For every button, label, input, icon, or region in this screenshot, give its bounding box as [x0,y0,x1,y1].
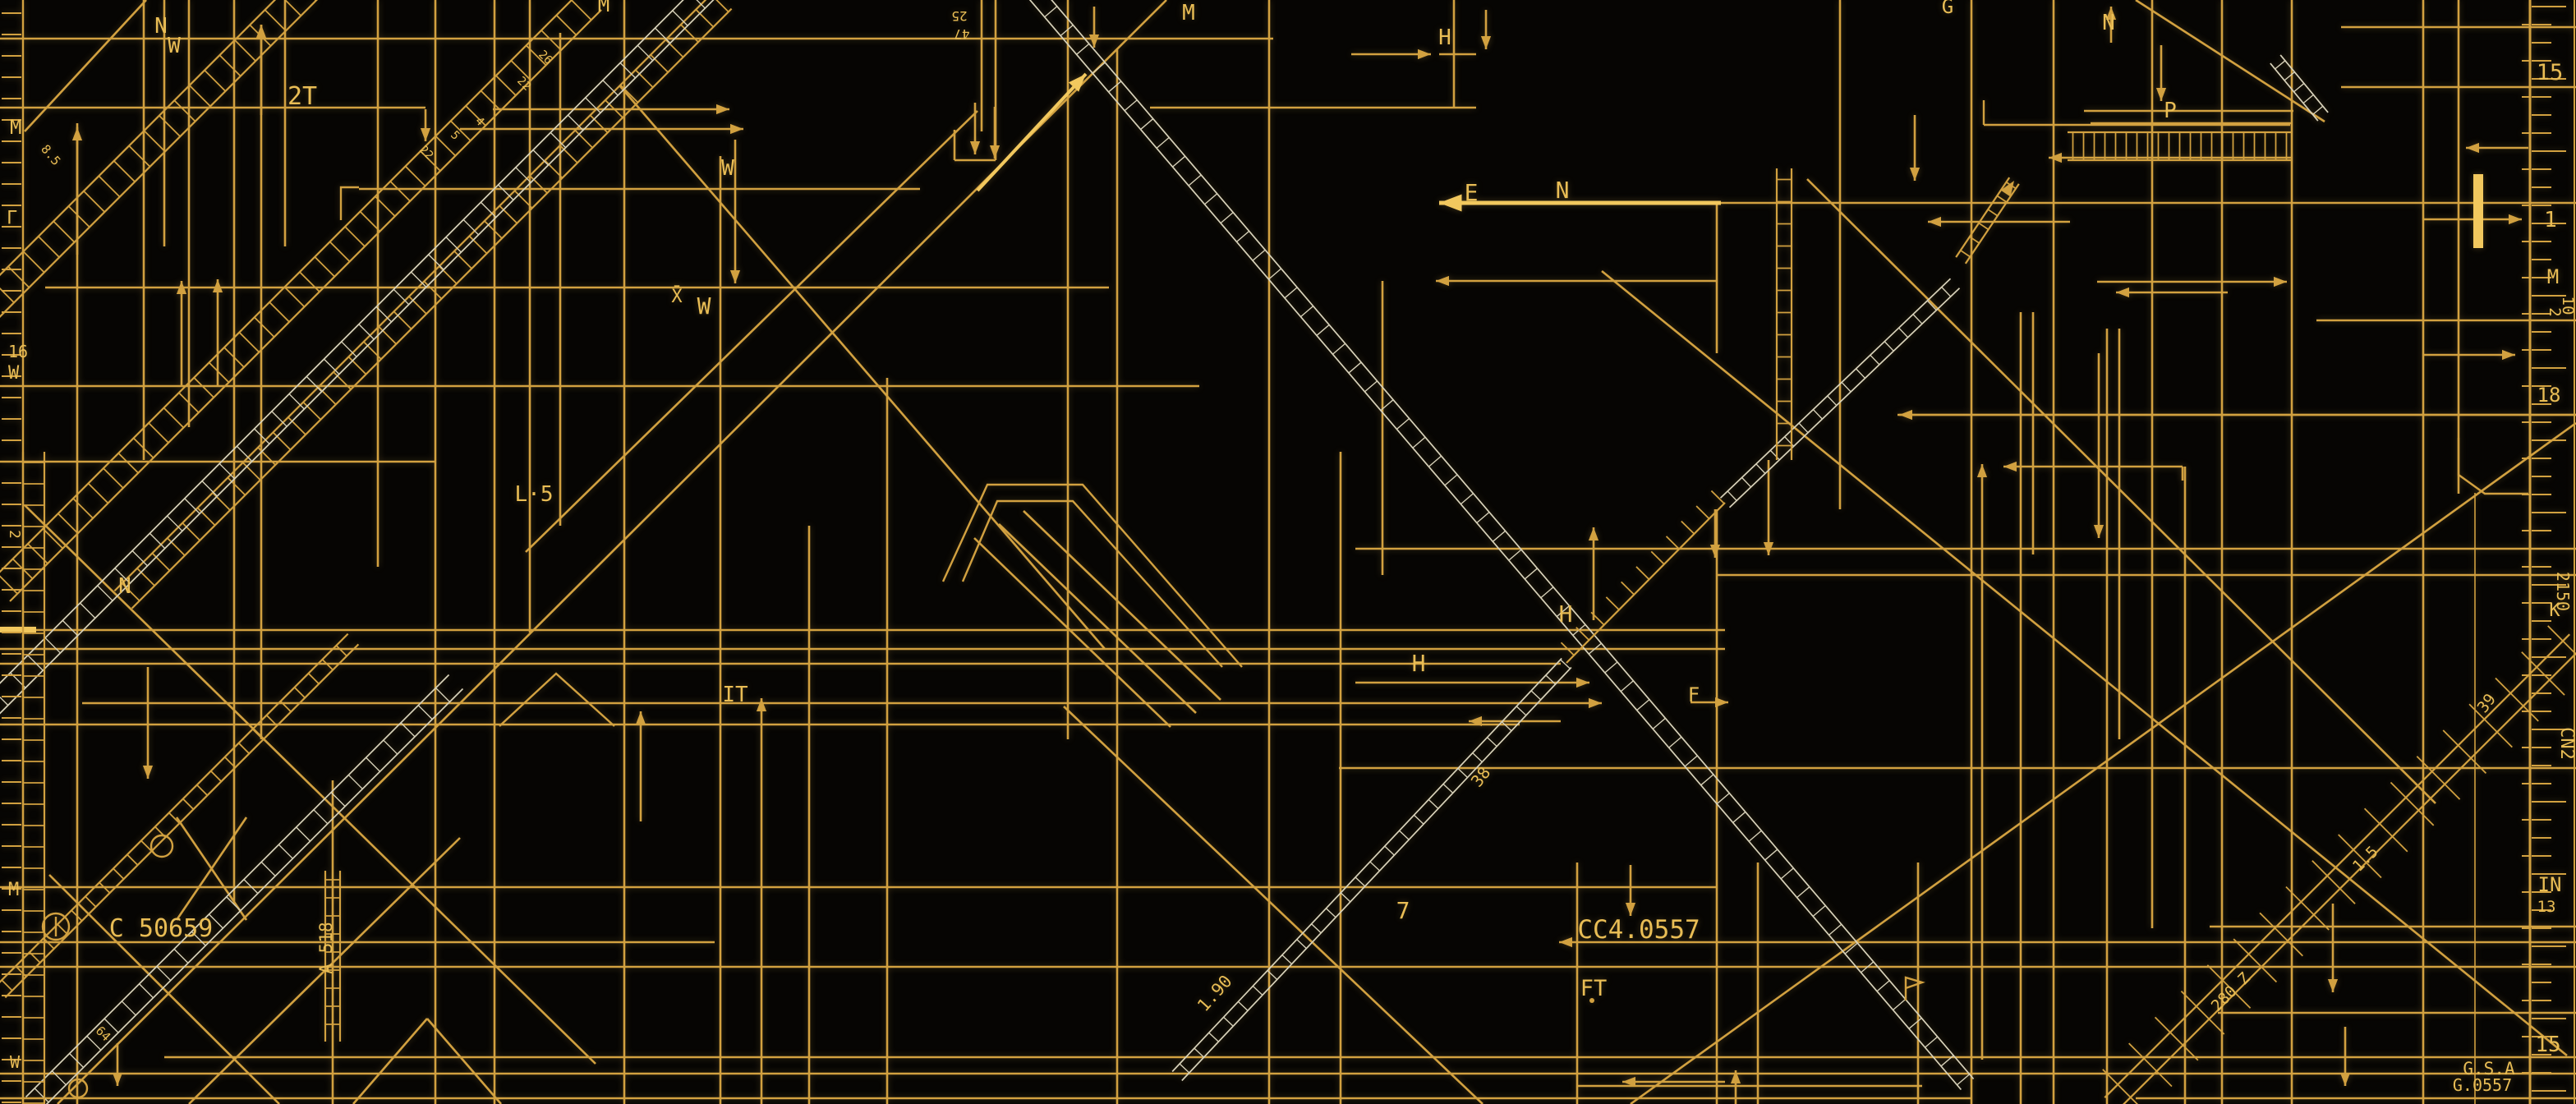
ladder-rail [1020,0,1961,1089]
ladder-rung [345,227,365,246]
ladder-rung [1781,868,1793,879]
arrowhead [2049,153,2062,163]
arrowhead [1481,36,1491,49]
ladder-rung [2522,652,2564,695]
ladder-rung [1300,306,1313,317]
label-5: 5 [448,129,462,143]
ladder-rung [673,11,688,25]
ladder-rung [1509,550,1521,560]
label-g0557: G.0557 [2453,1075,2512,1095]
ladder-rung [384,740,398,754]
label-w: W [168,34,181,58]
ladder-rung [1541,587,1553,598]
ladder-rung [1473,753,1483,762]
label-k: K [2549,600,2560,621]
ladder-rung [1189,175,1201,186]
ladder-rung [239,743,250,754]
ladder-rung [1813,905,1825,916]
ladder-rung [556,16,576,35]
line [620,86,1105,649]
ladder-rail [1966,184,2019,264]
ladder-rung [1209,1033,1219,1042]
ladder-rung [530,176,547,193]
bright-bar [2473,174,2483,248]
ladder-rung [591,115,608,132]
ladder-rung [152,553,169,570]
label-n: N [1556,177,1570,204]
ladder-rung [69,206,90,227]
ladder-rung [1326,908,1336,918]
arrowhead [1439,195,1462,212]
hatch-tick [1606,597,1619,609]
ladder-rung [129,145,149,166]
arrowhead [2466,143,2479,153]
label-25: 25 [951,8,967,24]
ladder-rung [560,145,577,163]
ladder-rung [45,638,60,653]
label-w: W [721,156,734,181]
ladder-rung [463,219,478,234]
ladder-rung [2548,626,2576,669]
label-13: 13 [2537,898,2556,916]
label-15: 1.5 [2349,843,2382,876]
ladder-rung [2390,783,2433,826]
arrowhead [757,698,766,711]
ladder-rung [269,302,289,322]
ladder-rung [1909,1018,1921,1028]
ladder-rung [1913,315,1922,324]
ladder-rung [1109,81,1121,92]
ladder-rung [1385,846,1395,855]
label-85: 8.5 [38,142,63,168]
ladder-rung [211,771,222,782]
ladder-rung [261,862,275,876]
ladder-rung [62,620,77,635]
arrowhead [970,141,980,154]
ladder-rung [1531,691,1541,700]
ladder-rung [308,674,319,684]
ladder-rung [235,40,255,61]
arrowhead [1715,697,1728,707]
ladder-rung [159,116,180,136]
ladder-rung [34,1088,48,1102]
ladder-rung [219,55,240,76]
arrowhead [990,145,1000,159]
arrowhead [1731,1070,1741,1083]
ladder-rung [99,176,119,196]
ladder-rung [1125,100,1137,111]
ladder-rung [1502,722,1511,731]
ladder-rail [1033,0,1974,1079]
ladder-rung [1685,756,1697,766]
ladder-rung [1238,1001,1248,1010]
ladder-rung [348,775,362,789]
ladder-rung [1516,706,1526,715]
label-7: 7 [1396,897,1410,924]
ladder-rung [39,237,59,257]
label-10: 10 [2559,297,2576,315]
label-m: M [598,0,609,16]
ladder-rung [58,513,78,533]
ladder-rung [651,55,668,72]
arrowhead [421,128,430,141]
ladder-rung [1733,812,1746,822]
ladder-rung [1045,7,1057,17]
label-in: IN [2538,873,2562,896]
line [1064,706,1483,1104]
ladder-rung [1813,410,1822,420]
ladder-rung [255,317,274,337]
ladder-rung [2275,61,2285,69]
ladder-rung [1525,568,1537,579]
ladder-rail [0,0,372,356]
ladder-rung [1428,799,1438,808]
ladder-rung [103,468,123,488]
ladder-rung [499,206,517,223]
label-h: H [1438,25,1451,50]
arrowhead [730,270,740,283]
label-e: E [1465,179,1479,206]
ladder-rung [2155,1017,2198,1060]
ladder-rung [23,251,44,272]
label-w: W [8,363,20,384]
arrowhead [1710,545,1720,558]
ladder-rung [1797,887,1810,898]
ladder-rung [132,550,147,565]
label-2: 2 [6,530,23,539]
ladder-rung [1842,382,1851,392]
ladder-rung [1297,940,1307,949]
hatch-line [1566,503,1725,663]
ladder-rung [1364,381,1377,392]
ladder-rung [1355,877,1365,886]
ladder-rung [711,0,729,11]
ladder-rung [1282,955,1292,964]
arrowhead [2094,525,2104,538]
ladder-rung [1605,662,1617,673]
ladder-rung [1253,986,1263,995]
ladder-rung [1756,464,1765,474]
ladder-rung [190,85,210,106]
label-ft: FT [1580,976,1608,1001]
ladder-rung [1870,355,1879,365]
ladder-rung [183,799,194,810]
ladder-rung [2443,730,2486,773]
ladder-rung [278,844,292,858]
arrowhead [2502,350,2515,360]
hatch-tick [1667,536,1680,549]
ladder-rung [219,463,234,478]
ladder-rung [1443,784,1453,793]
label-2t: 2T [287,82,317,111]
ladder-rung [149,533,164,548]
ladder-rung [1141,119,1153,130]
ladder-rung [1396,418,1409,429]
ladder-rung [202,481,217,496]
ladder-rung [1317,324,1329,335]
label-cn2: CN2 [2556,727,2576,760]
ladder-rung [88,483,108,503]
arrowhead [2340,1073,2350,1086]
ladder-rung [1856,369,1865,379]
ladder-rung [1460,494,1473,504]
ladder-rail [2104,634,2569,1097]
ladder-rung [174,100,195,121]
arrowhead [1589,698,1602,708]
ladder-rung [1893,1000,1906,1010]
ladder-rung [1701,775,1713,785]
label-f: F [1688,683,1700,706]
ladder-rung [2284,72,2294,80]
ladder-rung [2495,678,2538,720]
ladder-rung [0,690,8,705]
ladder-rung [620,85,637,103]
ladder-rung [1224,1017,1234,1026]
ladder-rung [481,90,500,110]
ladder-rung [394,311,412,329]
label-g: G [1942,0,1953,18]
ladder-rung [1205,194,1217,205]
label-m: M [2547,265,2559,288]
arrowhead [1559,937,1572,947]
ladder-rung [366,757,380,771]
ladder-rung [295,0,315,1]
ladder-rung [1414,815,1424,824]
ladder-rung [1765,849,1778,860]
arrowhead [716,104,729,114]
ladder-rung [80,603,94,618]
ladder-rung [174,949,188,963]
ladder-rung [342,342,356,356]
ladder-rung [303,402,320,420]
ladder-rung [1253,250,1265,260]
ladder-rung [185,499,200,513]
ladder-rung [2260,913,2302,955]
ladder-rung [1341,893,1350,902]
label-m: M [8,880,19,900]
ladder-rung [118,453,138,473]
ladder-rung [209,362,229,382]
ladder-rung [140,984,154,998]
ladder-rung [541,30,561,50]
ladder-rung [393,289,408,304]
ladder-rung [1770,450,1779,460]
arrowhead [143,766,153,779]
ladder-rung [198,508,215,525]
ladder-rung [1400,830,1410,839]
ladder-rung [336,646,347,656]
outline-path [499,674,614,726]
label-cc40557: CC4.0557 [1577,915,1700,945]
ladder-rung [141,840,152,851]
ladder-rung [469,236,486,253]
ladder-rung [205,71,225,91]
ladder-rung [0,282,14,302]
ladder-rung [575,131,592,148]
ladder-rung [1828,396,1837,406]
ladder-rail [1720,278,1950,498]
ladder-rung [85,896,96,907]
arrowhead [1589,527,1598,540]
ladder-rung [1997,195,2007,202]
ladder-rung [1173,156,1185,167]
ladder-rung [1332,343,1345,354]
ladder-rung [122,1001,136,1015]
ladder-rung [330,241,350,261]
ladder-rung [1413,437,1425,448]
ladder-rung [379,327,396,344]
ladder-rung [1370,862,1380,871]
arrowhead [1910,168,1920,181]
label-it: IT [722,683,748,707]
bright-bar [0,627,36,632]
ladder-rung [436,688,450,701]
label-p: P [2164,99,2177,123]
ladder-rung [300,272,320,292]
ladder-rung [665,39,683,57]
arrowhead [636,711,646,724]
ladder-rung [144,131,164,151]
label-h: H [1412,650,1426,677]
line [526,111,977,552]
label-15: 15 [2537,60,2564,85]
label-m: M [10,116,21,139]
ladder-rung [237,446,251,461]
ladder-rung [446,237,461,252]
ladder-rung [284,287,304,306]
ladder-rung [409,297,426,314]
arrowhead [730,124,743,134]
ladder-rung [655,28,670,43]
line [999,524,1196,713]
ladder-rung [1428,456,1441,467]
ladder-rung [1979,223,1989,230]
label-a518: A 518 [316,922,336,973]
label-: Γ [7,208,17,228]
label-n: N [154,14,168,39]
ladder-rung [620,63,635,78]
line [1807,179,2436,803]
label-l5: L·5 [515,482,554,507]
ladder-rung [1268,269,1281,279]
ladder-rung [1445,475,1457,485]
ladder-rung [280,0,301,16]
label-16: 16 [8,342,28,361]
ladder-rung [1221,213,1233,223]
line [49,875,279,1104]
ladder-rung [2,980,12,991]
ladder-rail [5,644,358,997]
ladder-rung [485,221,502,238]
ladder-rung [157,967,171,981]
ladder-rung [163,408,183,428]
arrowhead [1977,464,1987,477]
ladder-rung [637,45,652,60]
ladder-rung [1899,328,1908,338]
ladder-rung [1477,513,1489,523]
ladder-rung [1092,62,1105,73]
line [25,0,146,131]
ladder-rung [319,387,336,404]
ladder-rung [454,251,471,269]
ladder-rung [1884,342,1893,352]
ladder-rung [315,257,334,277]
label-c50659: C 50659 [109,914,213,943]
hatch-tick [1696,506,1709,518]
ladder-rung [197,785,208,796]
ladder-rung [1988,209,1998,216]
circle-mark [151,835,172,857]
ladder-rung [168,516,182,531]
ladder-rail [1956,177,2009,257]
ladder-rung [1180,1064,1189,1073]
ladder-rung [168,538,185,555]
arrowhead [1928,217,1941,227]
arrowhead [2328,979,2338,992]
ladder-rung [84,191,104,212]
ladder-rung [418,706,432,720]
ladder-rung [295,688,306,698]
ladder-rung [1157,137,1169,148]
ladder-rung [1829,924,1842,935]
ladder-rung [1488,738,1497,747]
ladder-rung [636,70,653,87]
ladder-rung [297,827,310,841]
label-w: W [10,1052,21,1072]
label-47: 47 [954,26,969,42]
ladder-rung [390,182,410,201]
line [427,1019,501,1104]
arrowhead [1418,49,1431,59]
ladder-rung [1727,491,1736,501]
label-h: H [1559,600,1573,628]
arrowhead [2116,287,2129,297]
ladder-rung [603,80,618,95]
ladder-rung [424,282,441,299]
ladder-rung [213,493,230,510]
label-18: 18 [2537,384,2561,407]
arrowhead [113,1073,122,1086]
ladder-rung [1925,1037,1938,1047]
ladder-rung [1493,531,1505,541]
ladder-rung [1285,287,1297,298]
ladder-rung [265,10,286,30]
ladder-rung [324,359,338,374]
ladder-rung [1637,700,1649,711]
ladder-rung [149,423,168,443]
ladder-rung [243,462,260,480]
ladder-rung [1749,830,1761,841]
ladder-rung [182,523,200,540]
arrowhead [1899,410,1912,420]
ladder-rung [1669,737,1681,747]
arrowhead [2003,462,2017,471]
ladder-rung [439,266,457,283]
ladder-rung [2294,84,2304,92]
ladder-rung [499,185,513,200]
ladder-rung [1312,924,1322,933]
ladder-rung [306,376,321,391]
label-m: M [1182,1,1195,25]
ladder-rung [314,810,328,824]
ladder-rung [1236,231,1249,241]
outline-path [1906,977,1922,1000]
ladder-rung [288,417,306,435]
ladder-rail [26,675,449,1097]
ladder-rung [586,98,600,113]
ladder-rung [53,221,74,241]
ladder-rung [412,272,426,287]
